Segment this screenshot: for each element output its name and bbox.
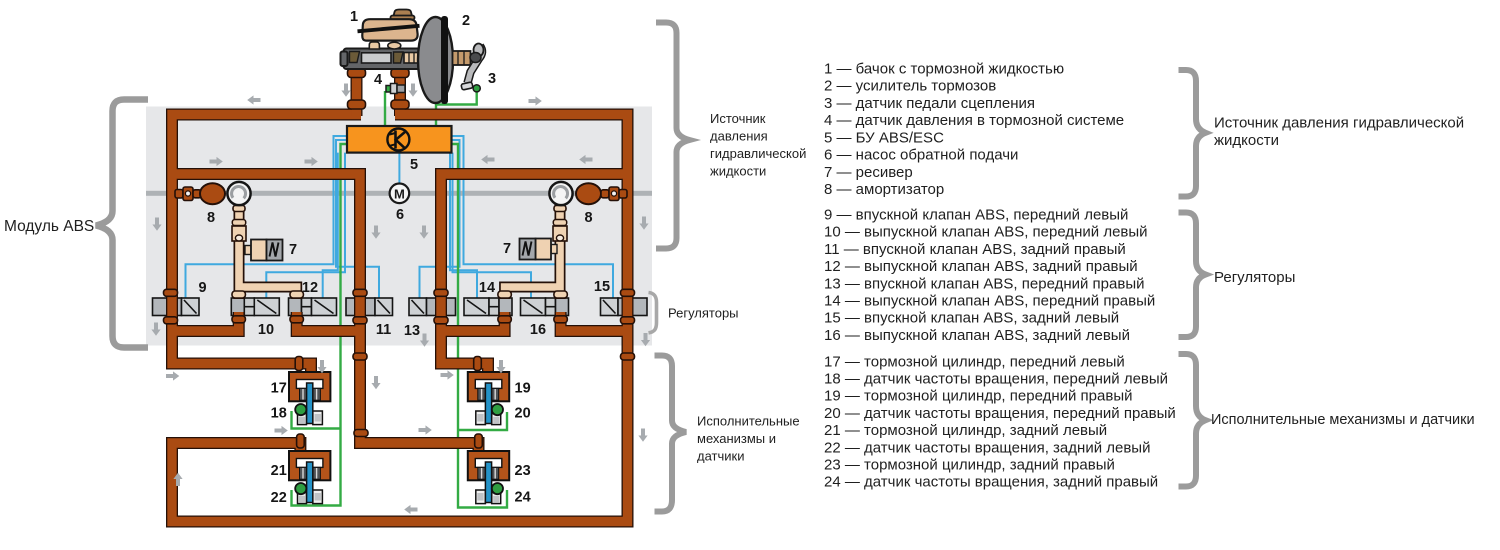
svg-text:Регуляторы: Регуляторы	[1214, 269, 1295, 286]
svg-text:7: 7	[503, 241, 511, 257]
svg-text:22: 22	[271, 490, 287, 506]
svg-text:5: 5	[410, 157, 418, 173]
svg-text:19: 19	[515, 381, 531, 397]
svg-text:3: 3	[488, 71, 496, 87]
svg-text:18: 18	[271, 406, 287, 422]
svg-text:23: 23	[515, 463, 531, 479]
svg-text:Модуль ABS: Модуль ABS	[4, 218, 94, 235]
svg-text:24: 24	[515, 490, 531, 506]
svg-text:8: 8	[584, 210, 592, 226]
svg-text:10: 10	[258, 322, 274, 338]
svg-text:6: 6	[396, 207, 404, 223]
svg-text:20: 20	[515, 406, 531, 422]
svg-text:16: 16	[530, 322, 546, 338]
svg-text:11: 11	[376, 322, 391, 338]
svg-text:21: 21	[271, 463, 287, 479]
svg-text:17: 17	[271, 381, 287, 397]
svg-text:M: M	[394, 186, 405, 201]
svg-text:Исполнительные механизмы и дат: Исполнительные механизмы и датчики	[1211, 412, 1475, 428]
svg-text:14: 14	[479, 280, 495, 296]
svg-text:2: 2	[462, 13, 470, 29]
svg-text:4: 4	[374, 72, 382, 88]
svg-text:1: 1	[350, 9, 358, 25]
svg-text:Регуляторы: Регуляторы	[668, 306, 739, 321]
svg-text:15: 15	[594, 279, 610, 295]
svg-text:9: 9	[198, 280, 206, 296]
svg-text:13: 13	[404, 323, 420, 339]
svg-text:9 — впускной клапан ABS, перед: 9 — впускной клапан ABS, передний левый1…	[824, 207, 1155, 344]
svg-text:12: 12	[302, 280, 318, 296]
svg-text:8: 8	[207, 210, 215, 226]
svg-text:7: 7	[289, 242, 297, 258]
